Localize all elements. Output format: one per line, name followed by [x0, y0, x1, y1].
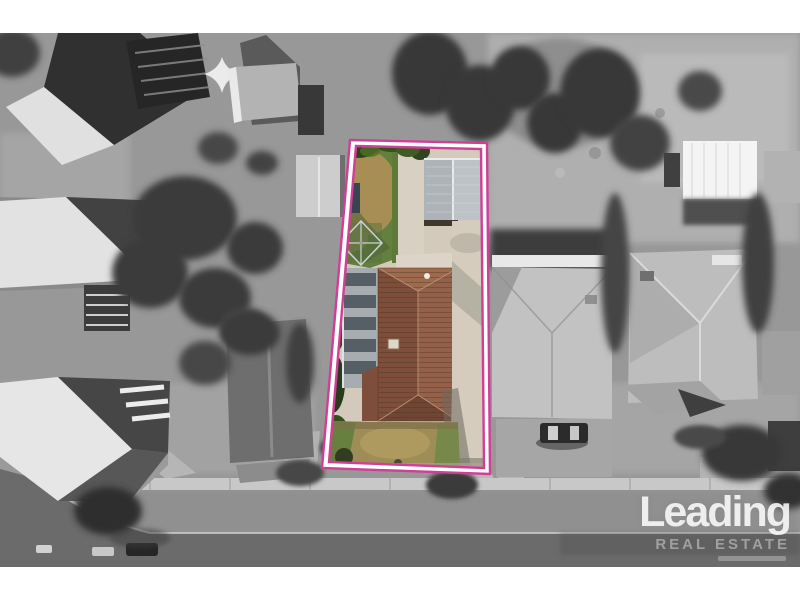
- chimney: [388, 339, 399, 349]
- roof-cooler-unit: [424, 273, 430, 279]
- tree: [678, 71, 722, 111]
- white-shed-roof: [683, 141, 757, 199]
- tree-row: [742, 193, 774, 333]
- concrete-path: [398, 145, 424, 261]
- tree-row: [601, 193, 629, 353]
- clothesline-pole: [359, 241, 363, 245]
- lawn-green-edge: [434, 423, 460, 467]
- parked-car: [540, 423, 588, 443]
- hedge: [674, 425, 726, 449]
- eave-shadow: [332, 422, 458, 429]
- small-structure: [664, 153, 680, 187]
- dried-grass-patch: [360, 427, 430, 459]
- tree: [179, 341, 231, 385]
- tree: [426, 471, 478, 499]
- roof-eave: [492, 255, 612, 267]
- agency-watermark: Leading REAL ESTATE: [639, 491, 790, 561]
- tree: [198, 132, 238, 164]
- stain: [450, 233, 486, 253]
- tree-shadow: [110, 528, 170, 548]
- tree: [610, 115, 670, 171]
- roof-wing: [362, 365, 380, 421]
- roof-vent: [640, 271, 654, 281]
- watermark-brand-logo: Leading: [639, 491, 790, 534]
- parked-car: [92, 547, 114, 556]
- car-windscreen: [570, 426, 579, 440]
- house-roof: [234, 63, 302, 121]
- carport-panel: [344, 317, 376, 330]
- aerial-scene: [0, 33, 800, 567]
- car-windscreen: [548, 426, 558, 440]
- edge-structure: [764, 151, 800, 203]
- aerial-photograph: Leading REAL ESTATE: [0, 33, 800, 567]
- carport-panel: [344, 295, 376, 308]
- road-marking: [36, 545, 52, 553]
- roof-vent: [585, 295, 597, 304]
- tree: [220, 311, 280, 355]
- tree: [227, 222, 283, 274]
- tree: [246, 151, 278, 175]
- watermark-fineprint: [718, 556, 786, 561]
- shed-roof: [298, 85, 324, 135]
- solar-panel-roof: [126, 33, 210, 109]
- roof-highlight: [712, 255, 742, 265]
- edge-structure: [762, 331, 800, 395]
- carport-panel: [344, 273, 376, 286]
- carport-panel: [344, 339, 376, 352]
- watermark-tagline: REAL ESTATE: [639, 537, 790, 552]
- tree-row: [286, 323, 314, 403]
- tree: [112, 238, 188, 308]
- tree: [74, 487, 142, 535]
- real-estate-aerial-listing-image: Leading REAL ESTATE: [0, 0, 800, 600]
- shrub: [276, 460, 324, 486]
